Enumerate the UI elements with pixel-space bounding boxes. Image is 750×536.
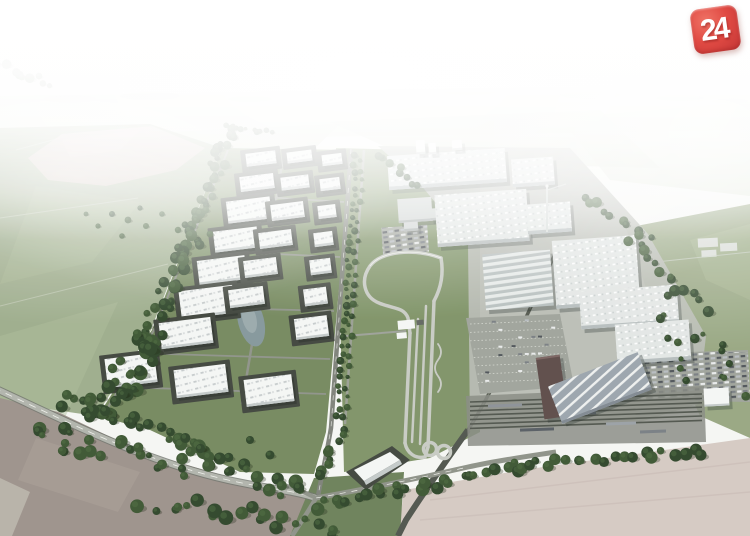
aerial-factory-render: 24: [0, 0, 750, 536]
news24-logo-badge: 24: [689, 4, 742, 55]
news24-logo-text: 24: [698, 11, 729, 48]
atmospheric-haze: [0, 0, 750, 536]
haze-veil: [0, 0, 750, 536]
scene-canvas: [0, 0, 750, 536]
